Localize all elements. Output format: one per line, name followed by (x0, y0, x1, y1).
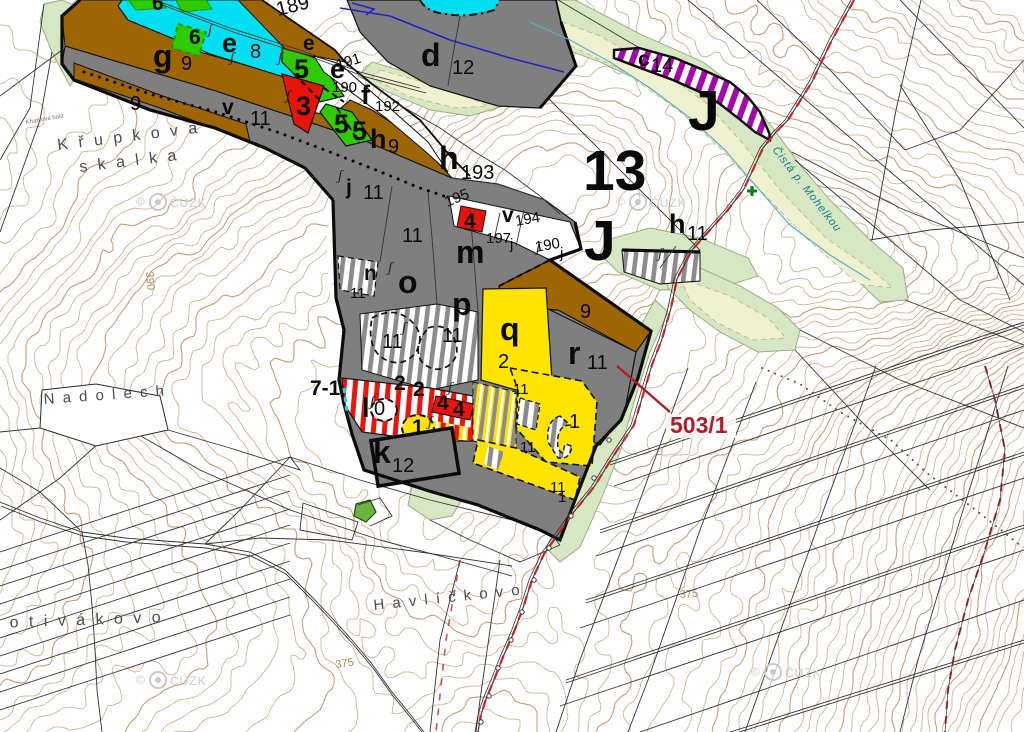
svg-text:11: 11 (350, 285, 366, 302)
svg-text:4: 4 (453, 398, 465, 421)
svg-text:©: © (136, 195, 146, 209)
svg-text:197: 197 (486, 230, 511, 247)
svg-text:j: j (509, 236, 513, 253)
svg-text:n: n (364, 262, 377, 285)
svg-text:14: 14 (651, 55, 673, 77)
svg-text:Křupkova bala: Křupkova bala (25, 113, 64, 126)
svg-text:l: l (362, 393, 370, 423)
svg-text:g: g (153, 38, 173, 74)
svg-text:9: 9 (130, 93, 141, 115)
svg-text:5: 5 (334, 109, 349, 139)
svg-text:5: 5 (294, 54, 309, 84)
svg-text:ČÚZK: ČÚZK (785, 665, 822, 680)
svg-text:8: 8 (250, 41, 261, 63)
svg-text:9: 9 (388, 136, 399, 158)
svg-text:11: 11 (513, 381, 529, 398)
svg-text:11: 11 (587, 352, 608, 374)
svg-text:6: 6 (189, 26, 201, 49)
svg-text:h: h (669, 209, 686, 239)
svg-text:m: m (456, 234, 484, 270)
svg-text:p: p (452, 286, 472, 322)
svg-text:189: 189 (274, 0, 312, 21)
svg-text:1: 1 (558, 489, 566, 506)
svg-text:9: 9 (580, 301, 591, 323)
svg-text:ČÚZK: ČÚZK (170, 195, 207, 210)
svg-text:9: 9 (181, 53, 192, 75)
svg-text:©: © (751, 665, 761, 679)
svg-text:12: 12 (452, 57, 474, 79)
svg-text:©: © (616, 195, 626, 209)
svg-text:4: 4 (464, 210, 476, 233)
svg-text:v: v (222, 96, 234, 119)
svg-text:11: 11 (363, 182, 384, 204)
svg-text:3: 3 (296, 91, 311, 121)
svg-text:11: 11 (382, 331, 403, 353)
svg-text:1: 1 (569, 411, 580, 433)
svg-text:1: 1 (412, 416, 424, 439)
svg-text:ČÚZK: ČÚZK (650, 195, 687, 210)
svg-text:6: 6 (152, 0, 164, 15)
svg-text:7-1: 7-1 (310, 377, 341, 400)
svg-text:k: k (373, 434, 391, 470)
svg-text:11: 11 (520, 439, 536, 456)
svg-text:375: 375 (679, 588, 698, 601)
svg-text:c: c (638, 48, 650, 71)
svg-text:d: d (421, 37, 441, 73)
svg-text:390: 390 (143, 271, 157, 290)
svg-text:190: 190 (332, 79, 357, 96)
svg-text:j: j (345, 176, 352, 199)
svg-text:11: 11 (402, 225, 423, 247)
svg-text:o: o (398, 264, 418, 300)
svg-text:ČÚZK: ČÚZK (170, 673, 207, 688)
svg-text:11: 11 (442, 325, 463, 347)
svg-text:12: 12 (392, 455, 414, 477)
svg-text:J: J (584, 209, 616, 273)
svg-text:j: j (559, 245, 563, 262)
svg-text:h: h (370, 124, 387, 154)
svg-text:0: 0 (374, 398, 385, 420)
svg-text:q: q (500, 311, 520, 347)
svg-text:r: r (568, 335, 580, 371)
svg-text:2: 2 (498, 351, 509, 373)
svg-text:375: 375 (335, 657, 355, 671)
svg-text:J: J (688, 79, 720, 143)
svg-text:11: 11 (250, 108, 271, 130)
svg-text:©: © (136, 673, 146, 687)
svg-text:2: 2 (394, 372, 406, 395)
svg-text:f: f (361, 80, 371, 110)
svg-text:2: 2 (413, 378, 425, 401)
svg-text:503/1: 503/1 (670, 412, 728, 438)
svg-text:5: 5 (352, 116, 367, 146)
svg-text:h: h (439, 140, 459, 176)
svg-text:193: 193 (461, 162, 494, 184)
svg-text:e: e (303, 32, 315, 55)
svg-text:192: 192 (375, 98, 400, 115)
svg-text:v: v (502, 204, 514, 227)
svg-text:11: 11 (687, 223, 708, 245)
